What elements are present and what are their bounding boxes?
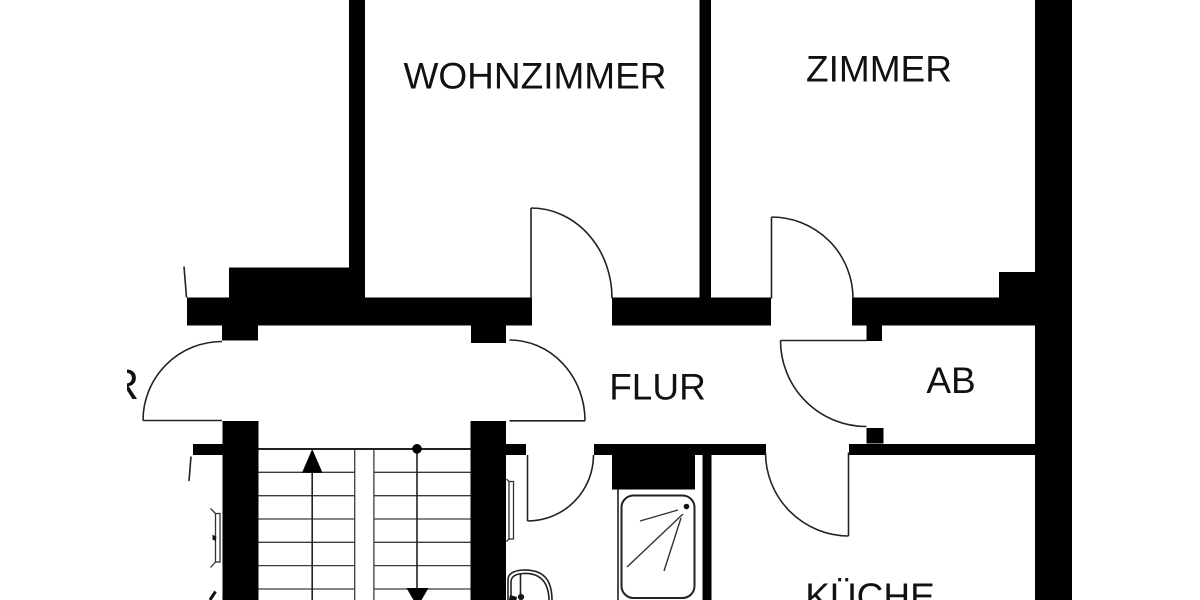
- svg-text:ZIMMER: ZIMMER: [806, 49, 952, 90]
- svg-text:AB: AB: [926, 360, 975, 401]
- svg-text:FLUR: FLUR: [609, 367, 706, 408]
- svg-text:KÜCHE: KÜCHE: [805, 576, 935, 600]
- svg-text:WOHNZIMMER: WOHNZIMMER: [403, 56, 666, 97]
